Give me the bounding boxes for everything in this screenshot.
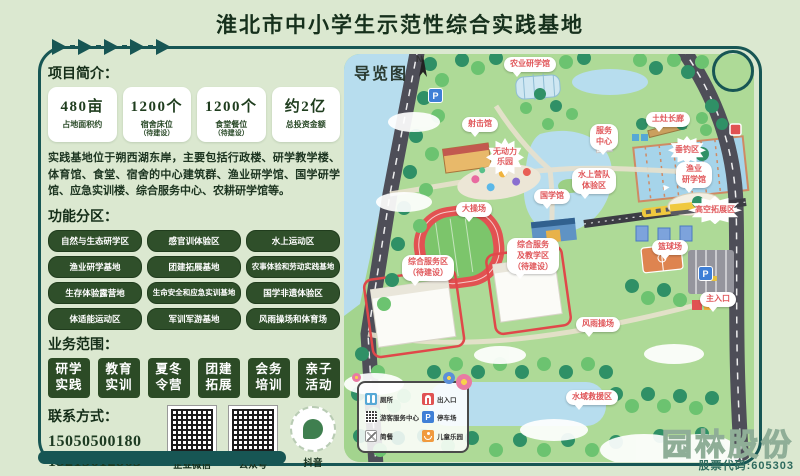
zone-row: 体适能运动区 军训军游基地 风雨操场和体育场 [48,308,340,330]
legend-item-visitor-center: 游客服务中心 [365,411,422,423]
business-blocks: 研学实践 教育实训 夏冬令营 团建拓展 会务培训 亲子活动 [48,358,340,398]
leaf-icon [303,419,323,439]
parking-letter: P [432,91,438,101]
stat-cards: 480亩 占地面积约 1200个 宿舍床位 （待建设） 1200个 食堂餐位 （… [48,87,340,142]
stat-card-beds: 1200个 宿舍床位 （待建设） [123,87,192,142]
block-line: 研学 [55,362,82,378]
arrow-icon [52,39,67,55]
zone-pill: 国学非遗体验区 [246,282,340,304]
legend-label: 简餐 [380,431,393,441]
legend-item-parking: P停车场 [422,411,464,423]
map-label-agriculture-hall: 农业研学馆 [504,57,556,72]
intro-heading: 项目简介： [48,63,340,83]
zone-pill: 军训军游基地 [147,308,241,330]
block-line: 培训 [255,378,282,394]
zones-heading: 功能分区： [48,206,340,226]
stat-value: 480亩 [49,95,116,116]
stat-note [273,130,340,138]
zone-row: 生存体验露营地 生命安全和应急实训基地 国学非遗体验区 [48,282,340,304]
parking-marker-icon: P [428,88,443,103]
zone-pill: 农事体验和劳动实践基地 [246,256,340,278]
map-label-covered-playground: 风雨操场 [576,317,620,332]
map-label-service-center: 服务 中心 [590,124,618,150]
contact-heading: 联系方式： [48,406,168,426]
dash-dot [148,45,153,49]
stat-label: 食堂餐位 [198,119,265,130]
watermark: 园林股份 股票代码:605303 [662,430,794,473]
stat-value: 1200个 [198,95,265,116]
block-line: 拓展 [205,378,232,394]
zone-pill: 生命安全和应急实训基地 [147,282,241,304]
business-block: 教育实训 [98,358,140,398]
stat-card-investment: 约2亿 总投资金额 [272,87,341,142]
zone-pill: 水上运动区 [246,230,340,252]
flower-icon [443,372,455,384]
legend-label: 游客服务中心 [380,412,419,422]
map-label-basketball-court: 篮球场 [652,240,688,255]
block-line: 令营 [155,378,182,394]
info-panel: 项目简介： 480亩 占地面积约 1200个 宿舍床位 （待建设） 1200个 … [48,63,340,472]
visitor-center-icon [365,411,377,423]
parking-letter: P [422,411,434,423]
stat-note: （待建设） [124,130,191,138]
guide-map: 导览图 N 农业研学馆 射击馆 无动力 乐园 土灶长廊 服务 中心 垂钓区 渔业… [344,54,754,462]
business-block: 研学实践 [48,358,90,398]
map-label-stove-corridor: 土灶长廊 [646,112,690,127]
block-line: 夏冬 [155,362,182,378]
intro-description: 实践基地位于朔西湖东岸，主要包括行政楼、研学教学楼、体育馆、食堂、宿舍的中心建筑… [48,150,340,200]
legend-item-entrance: 出入口 [422,393,464,405]
map-label-service-zone: 综合服务区 （待建设） [402,255,454,281]
compass-icon: N [416,55,423,64]
map-legend: 厕所 出入口 游客服务中心 P停车场 简餐 儿童乐园 [357,381,469,453]
map-label-shooting-hall: 射击馆 [462,117,498,132]
legend-label: 停车场 [437,412,457,422]
legend-item-toilet: 厕所 [365,393,422,405]
legend-label: 出入口 [437,394,457,404]
legend-item-meal: 简餐 [365,430,422,442]
flower-icon [456,374,472,390]
stat-note [49,130,116,138]
zone-pill: 生存体验露营地 [48,282,142,304]
block-line: 活动 [305,378,332,394]
bottom-bar-decoration [38,451,286,464]
parking-letter: P [702,269,708,279]
meal-icon [365,430,377,442]
business-heading: 业务范围： [48,334,340,354]
watermark-company: 园林股份 [662,430,794,462]
qr-code-icon [229,406,277,454]
stat-value: 1200个 [124,95,191,116]
stat-note: （待建设） [198,130,265,138]
phone-number: 15050500180 [48,432,168,452]
stat-label: 总投资金额 [273,119,340,130]
map-label-service-teaching-zone: 综合服务 及教学区 （待建设） [507,238,559,274]
stat-card-area: 480亩 占地面积约 [48,87,117,142]
zone-pill: 感官训体验区 [147,230,241,252]
douyin-badge-icon [290,406,336,452]
qr-item-douyin: 抖音 [290,406,336,469]
parking-marker-icon: P [698,266,713,281]
block-line: 团建 [205,362,232,378]
flower-icon [352,373,361,382]
dash-dot [96,45,101,49]
zone-pill: 团建拓展基地 [147,256,241,278]
qr-label: 抖音 [290,455,336,469]
parking-icon: P [422,411,434,423]
page-title: 淮北市中小学生示范性综合实践基地 [0,9,800,39]
rocking-horse-icon [422,430,434,442]
zone-pill: 自然与生态研学区 [48,230,142,252]
business-block: 会务培训 [248,358,290,398]
block-line: 实践 [55,378,82,394]
legend-label: 厕所 [380,394,393,404]
map-label-water-camp-area: 水上营队 体验区 [572,168,616,194]
compass-needle-icon [416,55,430,81]
business-block: 团建拓展 [198,358,240,398]
business-block: 夏冬令营 [148,358,190,398]
arrow-icons [52,39,171,55]
legend-label: 儿童乐园 [437,431,463,441]
zone-row: 渔业研学基地 团建拓展基地 农事体验和劳动实践基地 [48,256,340,278]
zone-row: 自然与生态研学区 感官训体验区 水上运动区 [48,230,340,252]
block-line: 教育 [105,362,132,378]
business-block: 亲子活动 [298,358,340,398]
toilet-icon [365,393,377,405]
map-label-water-rescue-area: 水域救援区 [566,390,618,405]
block-line: 实训 [105,378,132,394]
map-label-guoxue-hall: 国学馆 [534,189,570,204]
block-line: 会务 [255,362,282,378]
watermark-stock-code: 股票代码:605303 [662,461,794,473]
frame-loop-decoration [712,50,754,92]
stat-label: 宿舍床位 [124,119,191,130]
zone-pill: 风雨操场和体育场 [246,308,340,330]
stat-label: 占地面积约 [49,119,116,130]
zone-pill: 体适能运动区 [48,308,142,330]
map-title: 导览图 [354,60,408,84]
dash-dot [70,45,75,49]
block-line: 亲子 [305,362,332,378]
stat-card-seats: 1200个 食堂餐位 （待建设） [197,87,266,142]
entrance-icon [422,393,434,405]
arrow-icon [156,39,171,55]
map-label-playground: 大操场 [456,202,492,217]
dash-dot [122,45,127,49]
arrow-icon [78,39,93,55]
stat-value: 约2亿 [273,95,340,116]
arrow-icon [104,39,119,55]
arrow-icon [130,39,145,55]
zone-pill: 渔业研学基地 [48,256,142,278]
map-label-fishery-hall: 渔业 研学馆 [676,162,712,188]
map-label-main-entrance: 主入口 [700,292,736,307]
legend-item-children-park: 儿童乐园 [422,430,464,442]
qr-code-icon [168,406,216,454]
